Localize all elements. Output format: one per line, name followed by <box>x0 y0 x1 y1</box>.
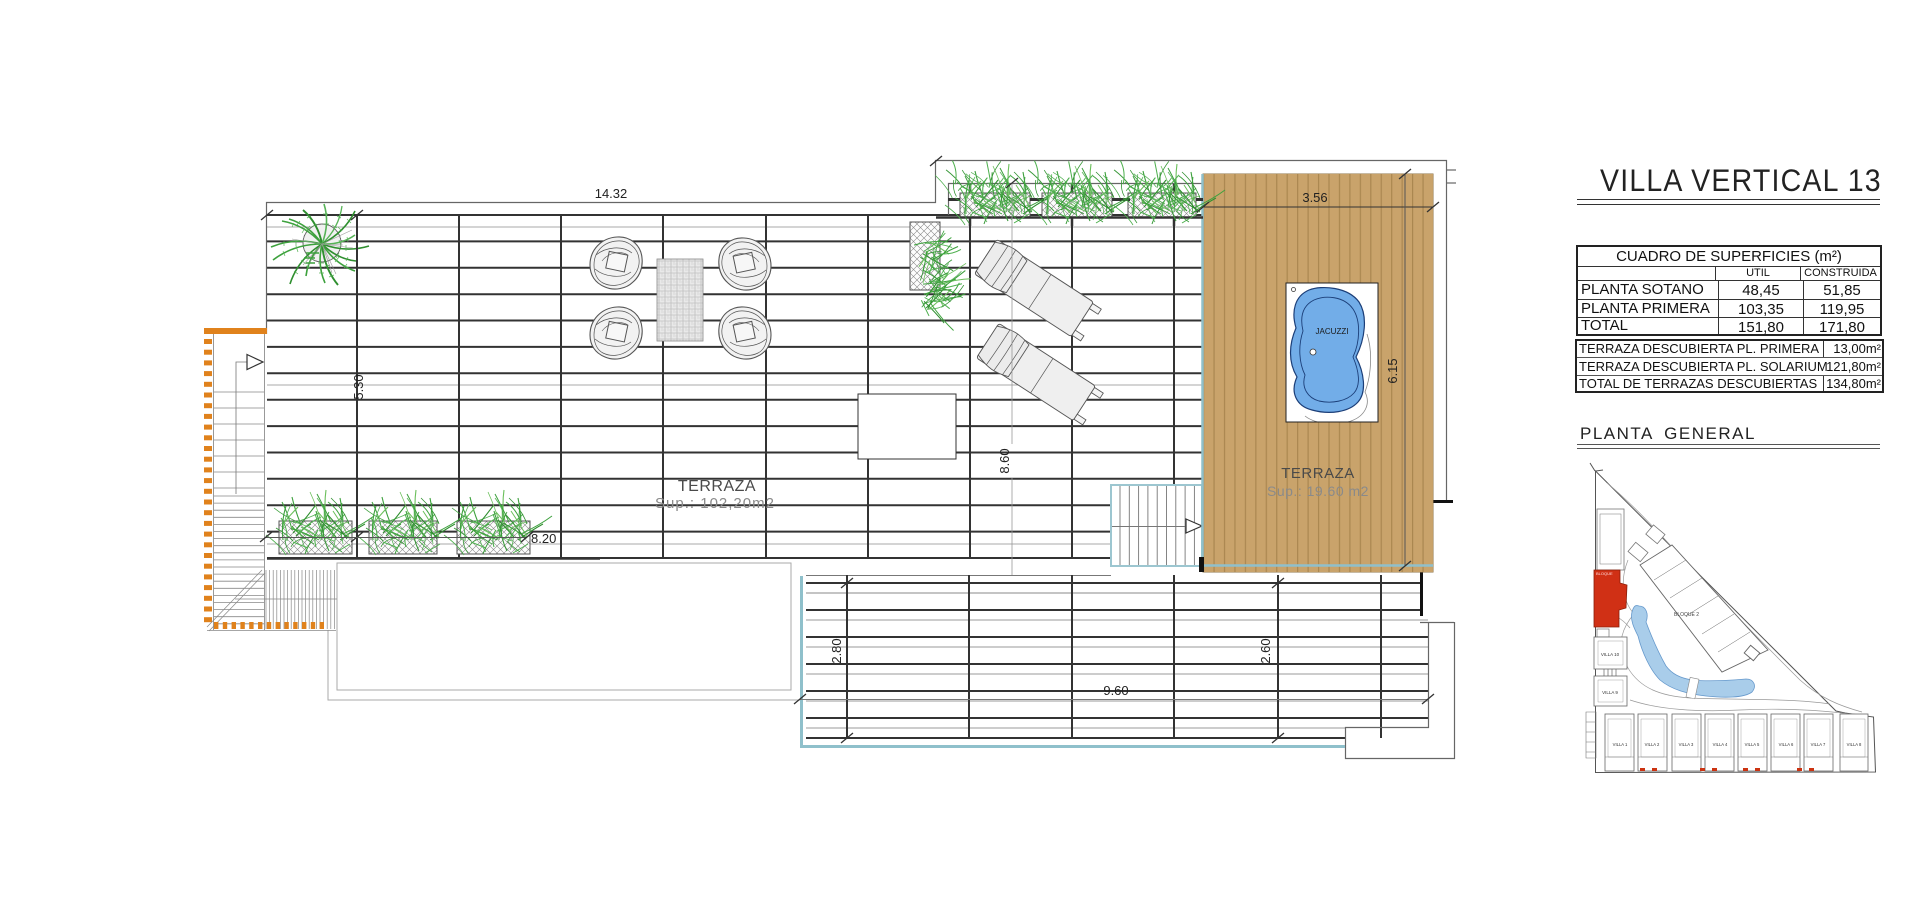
svg-text:8.60: 8.60 <box>997 448 1012 473</box>
svg-text:8.20: 8.20 <box>531 531 556 546</box>
svg-text:VILLA 8: VILLA 8 <box>1847 742 1862 747</box>
svg-text:Sup.: 102,20m2: Sup.: 102,20m2 <box>655 495 775 512</box>
svg-text:VILLA 9: VILLA 9 <box>1602 690 1618 695</box>
svg-text:VILLA 1: VILLA 1 <box>1613 742 1628 747</box>
svg-text:14.32: 14.32 <box>595 186 628 201</box>
svg-text:TERRAZA: TERRAZA <box>1281 465 1355 482</box>
svg-text:JACUZZI: JACUZZI <box>1316 327 1349 336</box>
svg-text:VILLA 2: VILLA 2 <box>1645 742 1660 747</box>
svg-text:2.60: 2.60 <box>1258 638 1273 663</box>
svg-text:VILLA 10: VILLA 10 <box>1601 652 1620 657</box>
svg-text:VILLA 7: VILLA 7 <box>1811 742 1826 747</box>
svg-text:VILLA 3: VILLA 3 <box>1679 742 1694 747</box>
svg-text:5.30: 5.30 <box>351 374 366 399</box>
svg-text:Sup.: 19.60 m2: Sup.: 19.60 m2 <box>1267 483 1369 499</box>
svg-text:VILLA 6: VILLA 6 <box>1779 742 1794 747</box>
svg-text:6.15: 6.15 <box>1385 358 1400 383</box>
svg-text:9.60: 9.60 <box>1103 683 1128 698</box>
svg-text:2.80: 2.80 <box>829 638 844 663</box>
svg-text:BLOQUE 2: BLOQUE 2 <box>1674 612 1699 618</box>
svg-text:VILLA 4: VILLA 4 <box>1713 742 1728 747</box>
svg-text:VILLA 5: VILLA 5 <box>1745 742 1760 747</box>
svg-text:TERRAZA: TERRAZA <box>678 478 756 495</box>
svg-text:BLOQUE: BLOQUE <box>1596 571 1613 576</box>
svg-text:3.56: 3.56 <box>1302 190 1327 205</box>
